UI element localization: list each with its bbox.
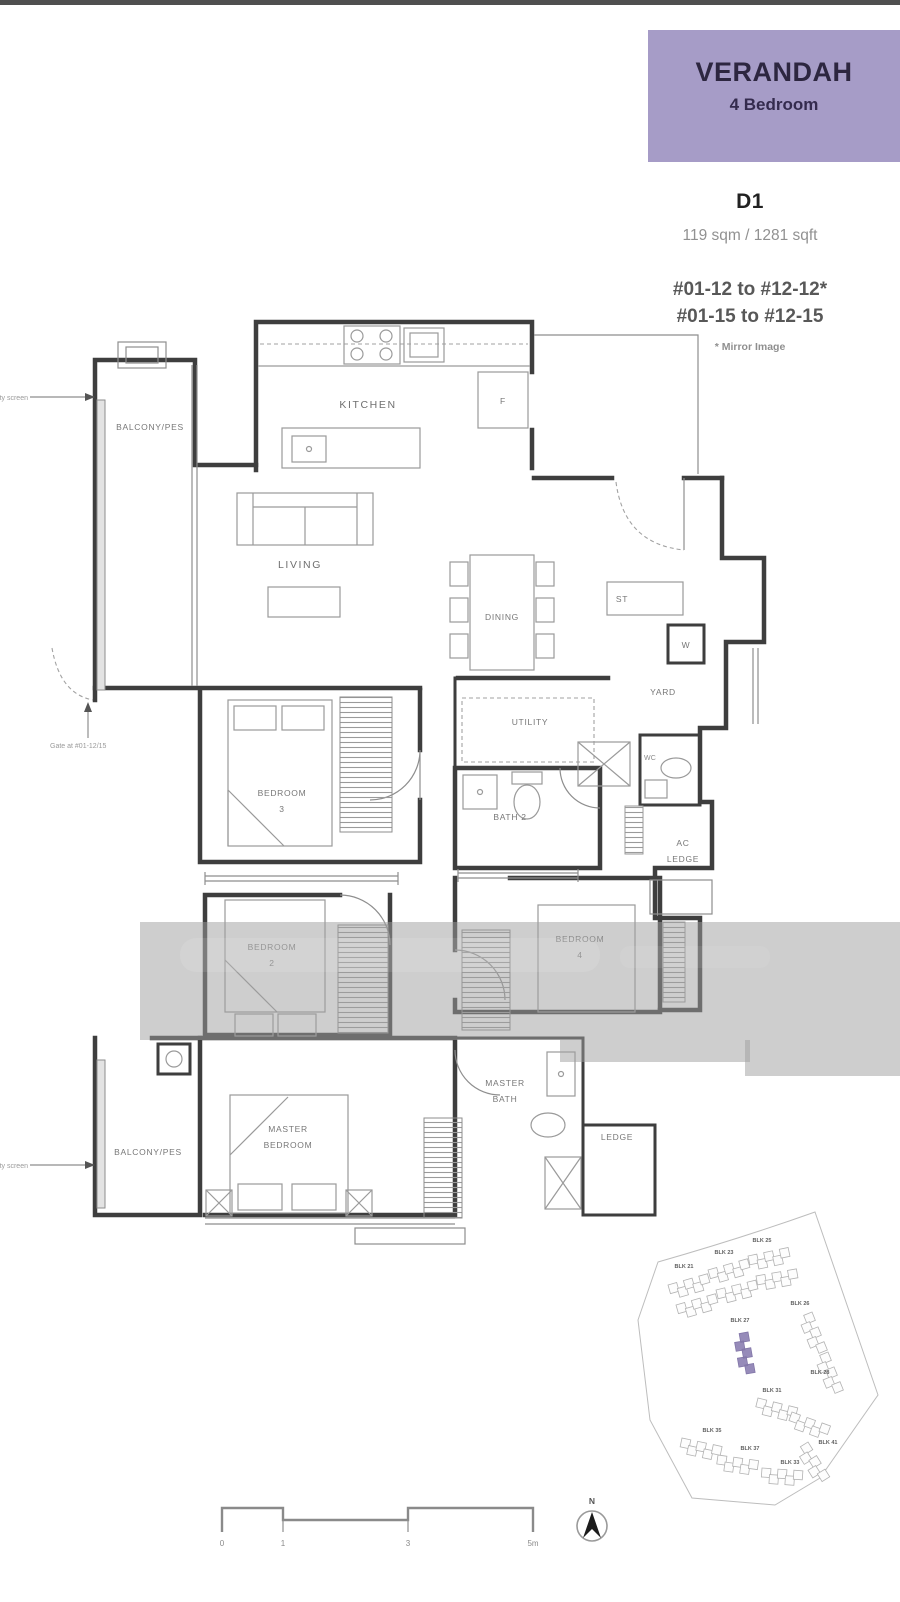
room-label-yard: YARD (650, 687, 676, 697)
north-label: N (589, 1496, 595, 1506)
bath2-sink-icon (463, 775, 497, 809)
north-indicator: N (577, 1496, 607, 1541)
planter-box (118, 342, 166, 368)
room-label-master-bedroom: MASTER (268, 1124, 308, 1134)
master-shower-icon (545, 1157, 581, 1209)
site-plan: BLK 21 BLK 23 BLK 25 BLK 26 BLK 27 BLK 2… (638, 1212, 878, 1505)
watermark-band (140, 922, 900, 1076)
bedroom3-wardrobe (340, 697, 392, 832)
heater-box (158, 1044, 190, 1074)
entry-door-arc (616, 482, 684, 550)
annotation-safety-screen-bottom: Safety screen (0, 1163, 28, 1170)
utility-room (462, 698, 594, 762)
master-wardrobe (424, 1118, 462, 1218)
floorplan-page: { "header": { "project_name": "VERANDAH"… (0, 0, 900, 1602)
room-label-wc: WC (644, 755, 656, 762)
annotations: Safety screen Safety screen Gate at #01-… (0, 393, 107, 1170)
room-label-utility: UTILITY (512, 717, 549, 727)
scale-bar: 0 1 3 5m (220, 1508, 539, 1548)
master-bed-icon (206, 1095, 372, 1216)
floorplan-drawing: BALCONY/PES KITCHEN F LIVING DINING ST W… (0, 0, 900, 1602)
room-label-living: LIVING (278, 559, 322, 571)
bath2-door (560, 768, 600, 808)
blk-28-label: BLK 28 (811, 1370, 830, 1376)
balcony-screen-bottom (97, 1060, 105, 1208)
bedroom3-bed-icon (228, 700, 332, 846)
blk-23-label: BLK 23 (715, 1250, 734, 1256)
annotation-gate: Gate at #01-12/15 (50, 743, 107, 750)
room-label-ac-ledge: LEDGE (667, 854, 699, 864)
scale-tick-0: 0 (220, 1539, 225, 1548)
room-label-bath2: BATH 2 (493, 812, 526, 822)
room-label-balcony-bottom: BALCONY/PES (114, 1147, 182, 1157)
blk-31-label: BLK 31 (763, 1388, 782, 1394)
gate-arc (52, 648, 93, 700)
planter-strip (355, 1228, 465, 1244)
room-label-bedroom3: BEDROOM (258, 788, 307, 798)
furniture (158, 326, 712, 1218)
scale-tick-1: 1 (281, 1539, 286, 1548)
scale-tick-5m: 5m (527, 1539, 538, 1548)
bath2-shower-icon (578, 742, 630, 786)
room-label-kitchen: KITCHEN (339, 399, 396, 411)
room-label-store: ST (616, 594, 628, 604)
blk-35-label: BLK 35 (703, 1428, 722, 1434)
room-label-ac: AC (676, 838, 689, 848)
ac-unit (625, 806, 643, 854)
blk-41-label: BLK 41 (819, 1440, 838, 1446)
svg-text:BATH: BATH (493, 1094, 518, 1104)
room-label-master-bath: MASTER (485, 1078, 525, 1088)
balcony-screen-top (97, 400, 105, 690)
blk-21-label: BLK 21 (675, 1264, 694, 1270)
svg-text:3: 3 (279, 804, 284, 814)
north-arrow-icon (583, 1512, 601, 1538)
room-label-washer: W (682, 640, 691, 650)
master-toilet-icon (531, 1113, 565, 1137)
room-label-ledge: LEDGE (601, 1132, 633, 1142)
room-label-fridge: F (500, 396, 506, 406)
room-label-balcony-top: BALCONY/PES (116, 422, 184, 432)
coffee-table-icon (268, 587, 340, 617)
site-plan-highlight-block (733, 1332, 755, 1375)
walls (95, 322, 764, 1215)
svg-text:BEDROOM: BEDROOM (264, 1140, 313, 1150)
blk-25-label: BLK 25 (753, 1238, 772, 1244)
blk-27-label: BLK 27 (731, 1318, 750, 1324)
annotation-safety-screen-top: Safety screen (0, 395, 28, 402)
blk-33-label: BLK 33 (781, 1460, 800, 1466)
wc-toilet-icon (661, 758, 691, 778)
windows-and-details (97, 342, 758, 1244)
sofa-icon (237, 493, 373, 545)
scale-tick-3: 3 (406, 1539, 411, 1548)
room-label-dining: DINING (485, 612, 519, 622)
wc-sink-icon (645, 780, 667, 798)
blk-26-label: BLK 26 (791, 1301, 810, 1307)
master-door (455, 1050, 500, 1095)
blk-37-label: BLK 37 (741, 1446, 760, 1452)
